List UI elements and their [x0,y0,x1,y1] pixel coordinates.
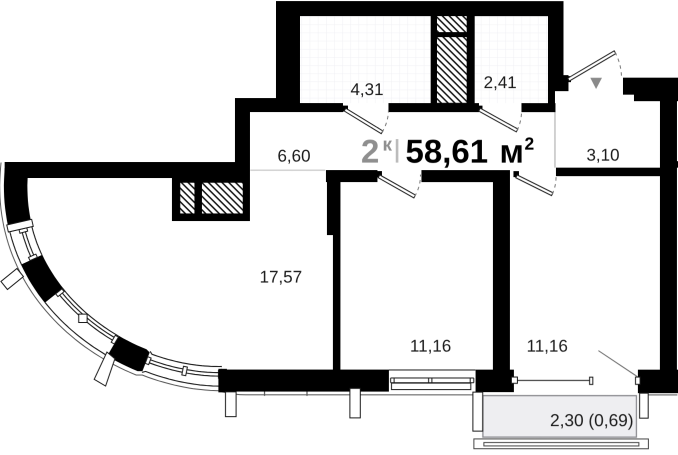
svg-text:6,60: 6,60 [277,147,310,166]
svg-text:к: к [382,135,392,156]
svg-text:2: 2 [524,134,534,154]
svg-text:м: м [499,133,523,170]
svg-text:11,16: 11,16 [410,337,451,356]
svg-text:58,61: 58,61 [405,133,488,170]
svg-text:2,41: 2,41 [484,73,517,92]
svg-text:11,16: 11,16 [527,337,568,356]
svg-text:4,31: 4,31 [350,80,383,99]
svg-text:17,57: 17,57 [260,268,303,287]
svg-text:3,10: 3,10 [586,145,619,164]
svg-text:2: 2 [361,133,379,170]
svg-text:2,30 (0,69): 2,30 (0,69) [550,410,634,430]
